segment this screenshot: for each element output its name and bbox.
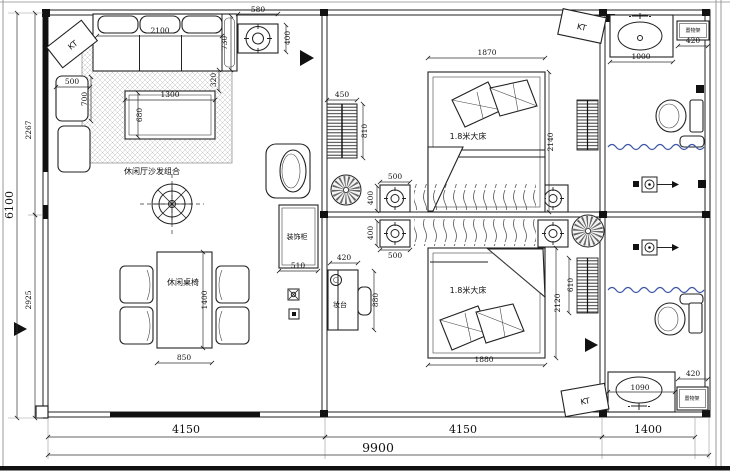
dim-left-bottom: 2925	[24, 290, 33, 309]
dim-ns-w1: 500	[388, 172, 403, 181]
floor-drain-icon	[696, 85, 704, 93]
toilet	[655, 303, 702, 335]
floor-plan-canvas: KT KT KT	[0, 0, 730, 473]
tv-strip-hatched	[577, 100, 598, 150]
dim-cabinet-d: 810	[360, 124, 369, 139]
dim-dining-w: 850	[177, 353, 192, 362]
dim-coffee-w: 1300	[160, 90, 179, 99]
dim-vanity1-w: 1000	[631, 52, 650, 61]
ceiling-light-icon	[238, 24, 278, 53]
dim-shelf2-w: 420	[686, 369, 701, 378]
bath-mat	[680, 136, 704, 147]
label-shelf-top: 置物架	[685, 27, 700, 34]
dim-left-total: 6100	[3, 191, 16, 219]
corner-column	[36, 406, 48, 418]
shower-curtain	[608, 288, 704, 293]
dim-coffee-d: 680	[135, 108, 144, 123]
dim-ns-d1: 400	[366, 191, 375, 206]
dim-cabinet-w: 450	[335, 90, 350, 99]
dim-bottom-1: 4150	[172, 423, 200, 436]
dim-bed2-w: 1880	[474, 355, 493, 364]
dining-set	[120, 252, 249, 348]
dresser	[328, 270, 371, 330]
headboard-drape	[414, 219, 536, 246]
label-deco-cabinet: 装饰柜	[287, 232, 308, 241]
dim-side-sofa-d: 700	[80, 92, 89, 107]
dim-shelf1-w: 420	[686, 36, 701, 45]
dim-bed1-l: 2140	[546, 132, 555, 151]
sofa-three-seat	[93, 14, 237, 71]
switch-icon-1	[288, 289, 299, 300]
label-bed-bottom: 1.8米大床	[450, 285, 487, 295]
armchair	[266, 144, 310, 198]
light-square-icon	[538, 220, 568, 247]
dim-bottom-2: 4150	[449, 423, 477, 436]
dim-side-sofa-w: 500	[65, 77, 80, 86]
wall-bedroom-divider	[322, 212, 710, 217]
marker-triangle	[585, 338, 598, 352]
ceiling-fan-icon	[140, 174, 204, 234]
bathroom-bottom	[608, 240, 708, 412]
bedroom-top	[414, 72, 598, 212]
light-square-icon	[380, 185, 410, 212]
shower-head-icon	[633, 240, 679, 255]
ac-label: KT	[580, 396, 591, 407]
light-square-icon	[380, 220, 410, 247]
living-room	[56, 14, 310, 348]
dim-ns-w2: 500	[388, 251, 403, 260]
label-dining-set: 休闲桌椅	[167, 277, 199, 287]
shoe-cabinet-hatched	[327, 104, 357, 158]
dim-dresser-l: 880	[371, 293, 380, 308]
tv-strip-hatched	[577, 258, 598, 313]
label-bed-top: 1.8米大床	[450, 131, 487, 141]
dim-bottom-3: 1400	[634, 423, 662, 436]
exhaust-fan-icon-1	[331, 175, 361, 205]
dim-vanity2-w: 1090	[630, 383, 649, 392]
label-shelf-bottom: 置物架	[684, 395, 699, 402]
wall-block	[698, 180, 706, 188]
dim-bed2-l: 2120	[553, 293, 562, 312]
dim-ns-d2: 400	[366, 226, 375, 241]
dim-deco-w: 510	[291, 261, 306, 270]
dim-light-w: 580	[251, 5, 266, 14]
dim-bed1-w: 1870	[477, 48, 496, 57]
exhaust-fan-icon-2	[572, 215, 604, 247]
label-dresser: 妆台	[333, 300, 347, 309]
label-sofa-group: 休闲厅沙发组合	[124, 166, 180, 176]
sofa-single-2	[58, 126, 90, 172]
headboard-drape	[414, 184, 536, 210]
dim-strip-d: 610	[566, 278, 575, 293]
dim-sofa-w: 2100	[150, 26, 169, 35]
dim-dresser-w: 420	[337, 253, 352, 262]
vanity-sink	[610, 13, 673, 57]
marker-triangle	[14, 322, 27, 336]
dim-dining-l: 1400	[200, 290, 209, 309]
dim-sofa-arm: 730	[220, 36, 229, 51]
switch-icon-2	[289, 309, 299, 319]
toilet	[656, 100, 703, 132]
shower-head-icon	[633, 177, 679, 192]
dim-sofa-off: 320	[209, 73, 218, 88]
floor-plan-sheet: KT KT KT	[0, 0, 730, 473]
dim-light-d: 400	[283, 31, 292, 46]
marker-triangle	[300, 50, 314, 66]
dim-left-top: 2267	[24, 120, 33, 139]
dim-bottom-total: 9900	[362, 440, 394, 455]
